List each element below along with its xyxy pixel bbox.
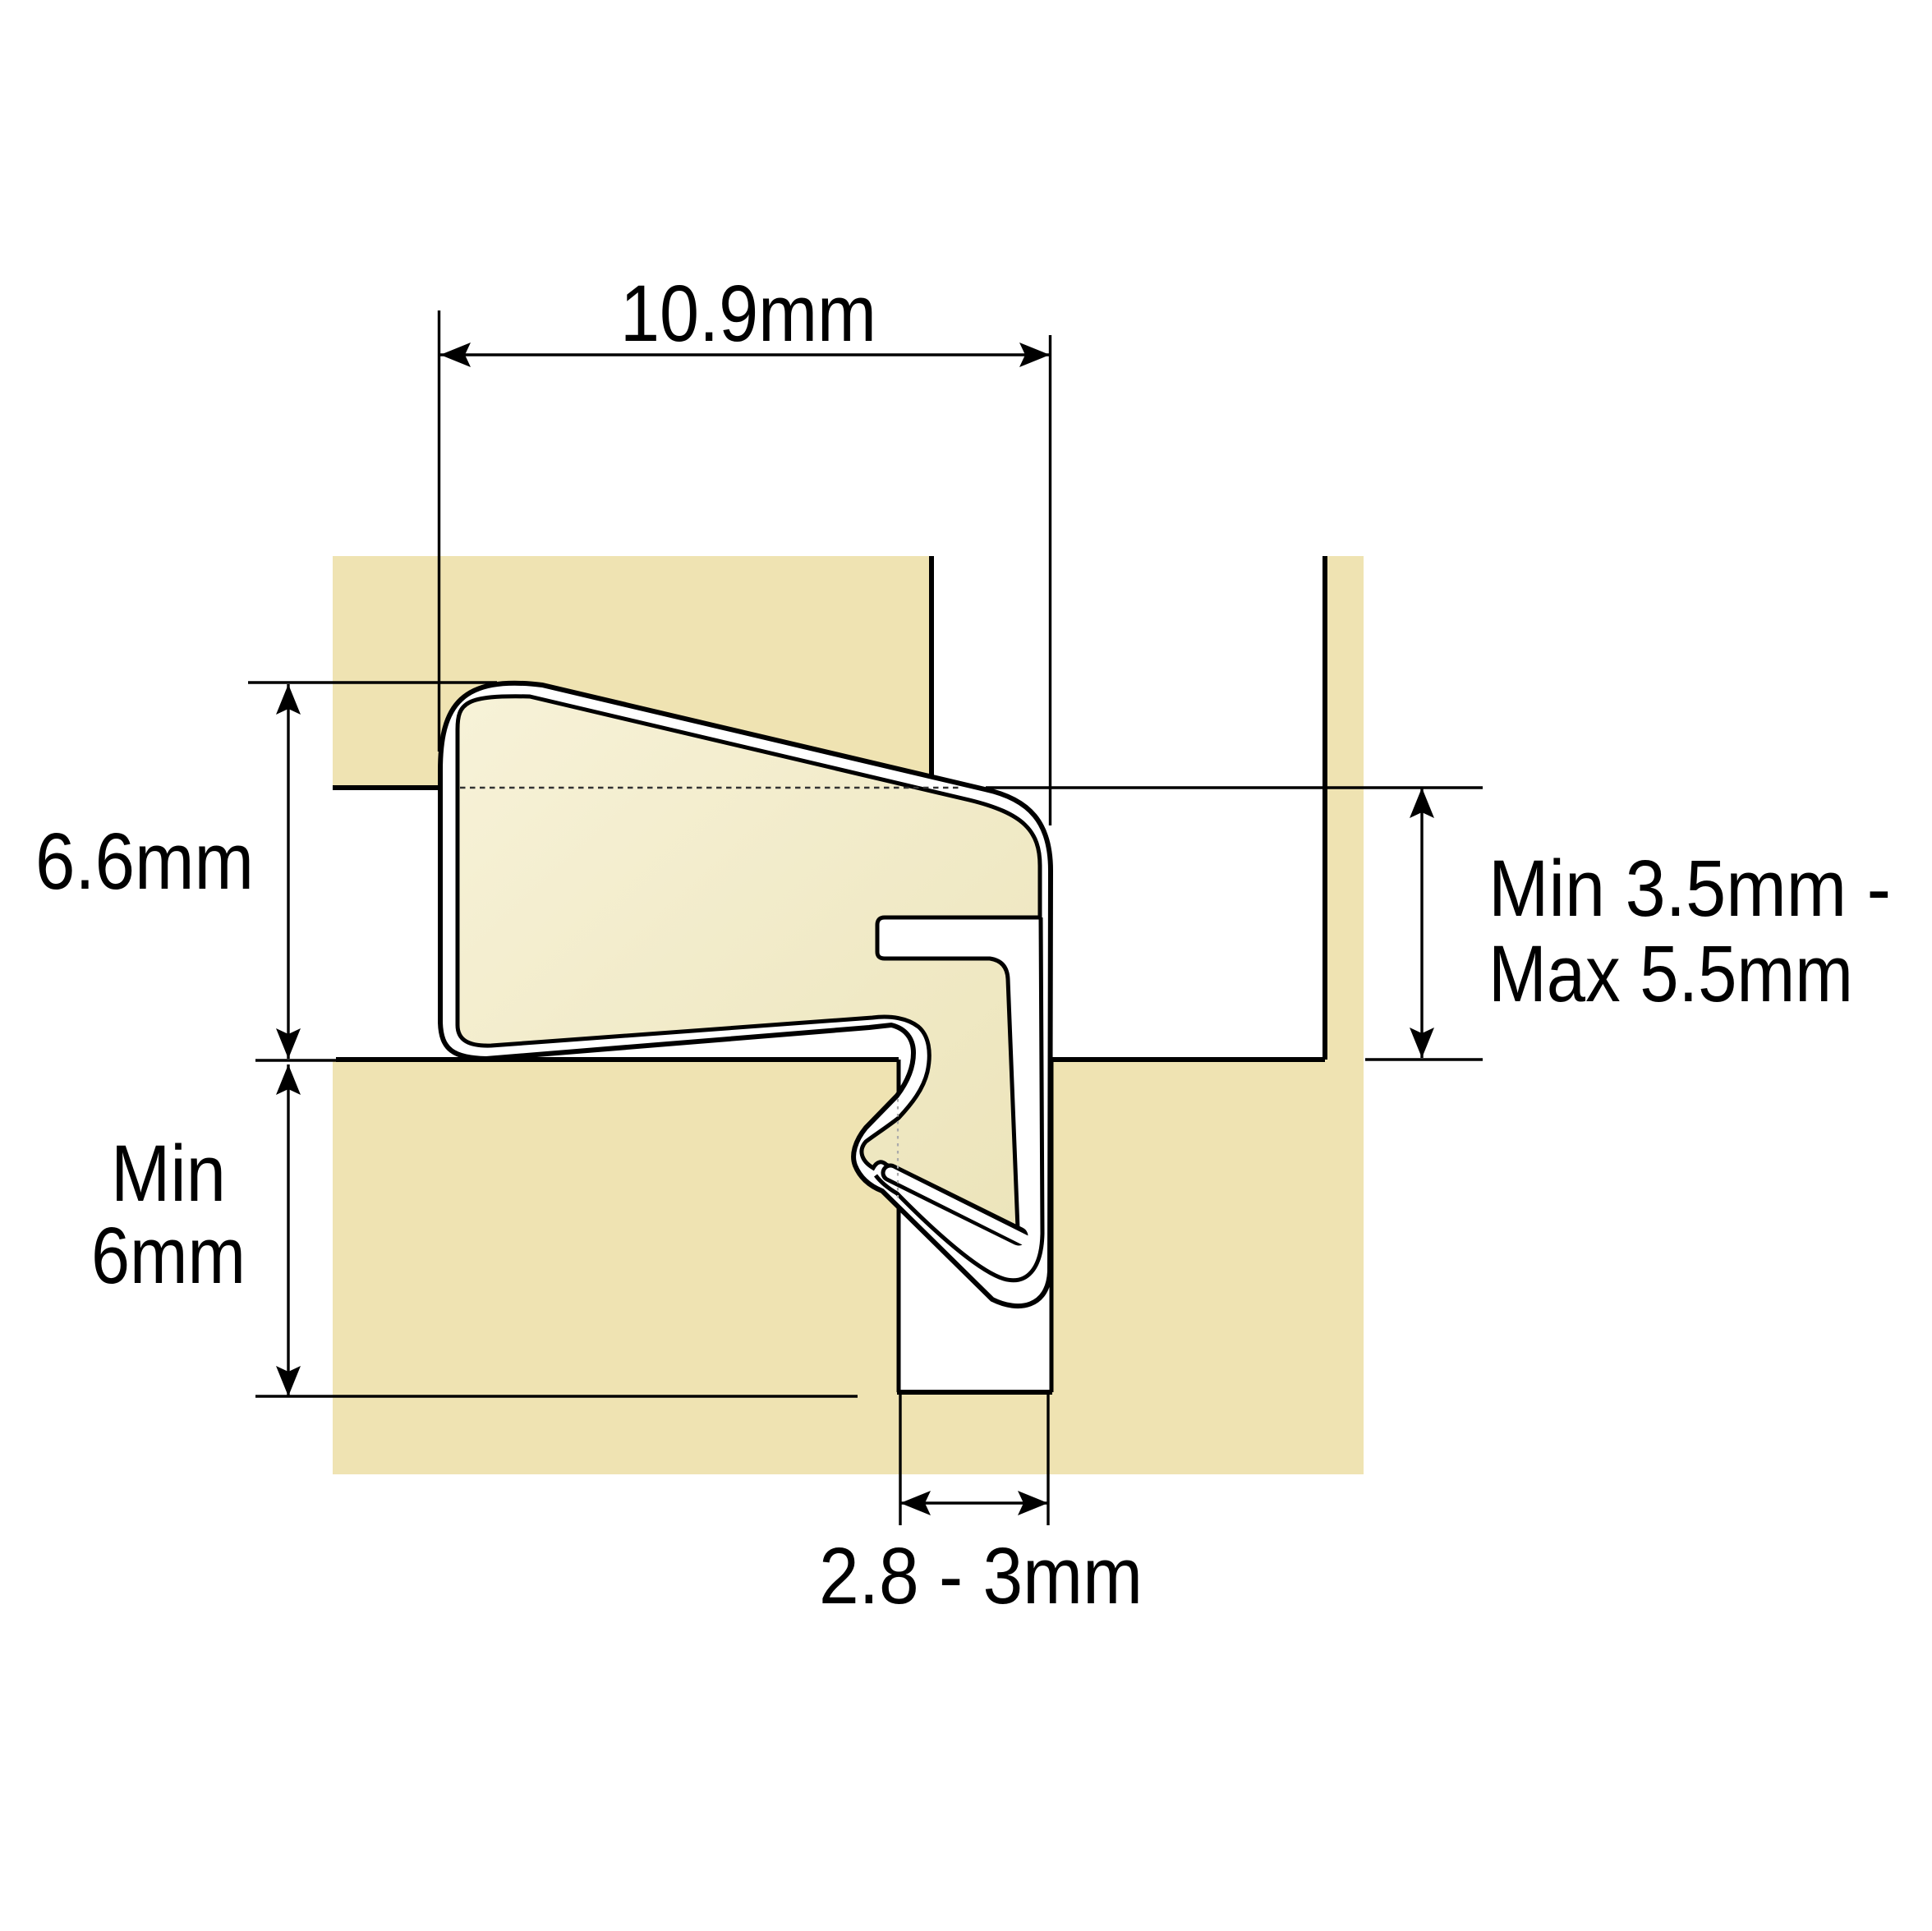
svg-text:6mm: 6mm (91, 1211, 246, 1300)
svg-text:6.6mm: 6.6mm (35, 816, 254, 906)
svg-text:Min: Min (111, 1129, 226, 1218)
svg-text:Min 3.5mm -: Min 3.5mm - (1488, 844, 1891, 933)
svg-text:2.8 - 3mm: 2.8 - 3mm (819, 1531, 1143, 1621)
svg-text:Max 5.5mm: Max 5.5mm (1488, 929, 1853, 1018)
svg-text:10.9mm: 10.9mm (620, 269, 876, 358)
